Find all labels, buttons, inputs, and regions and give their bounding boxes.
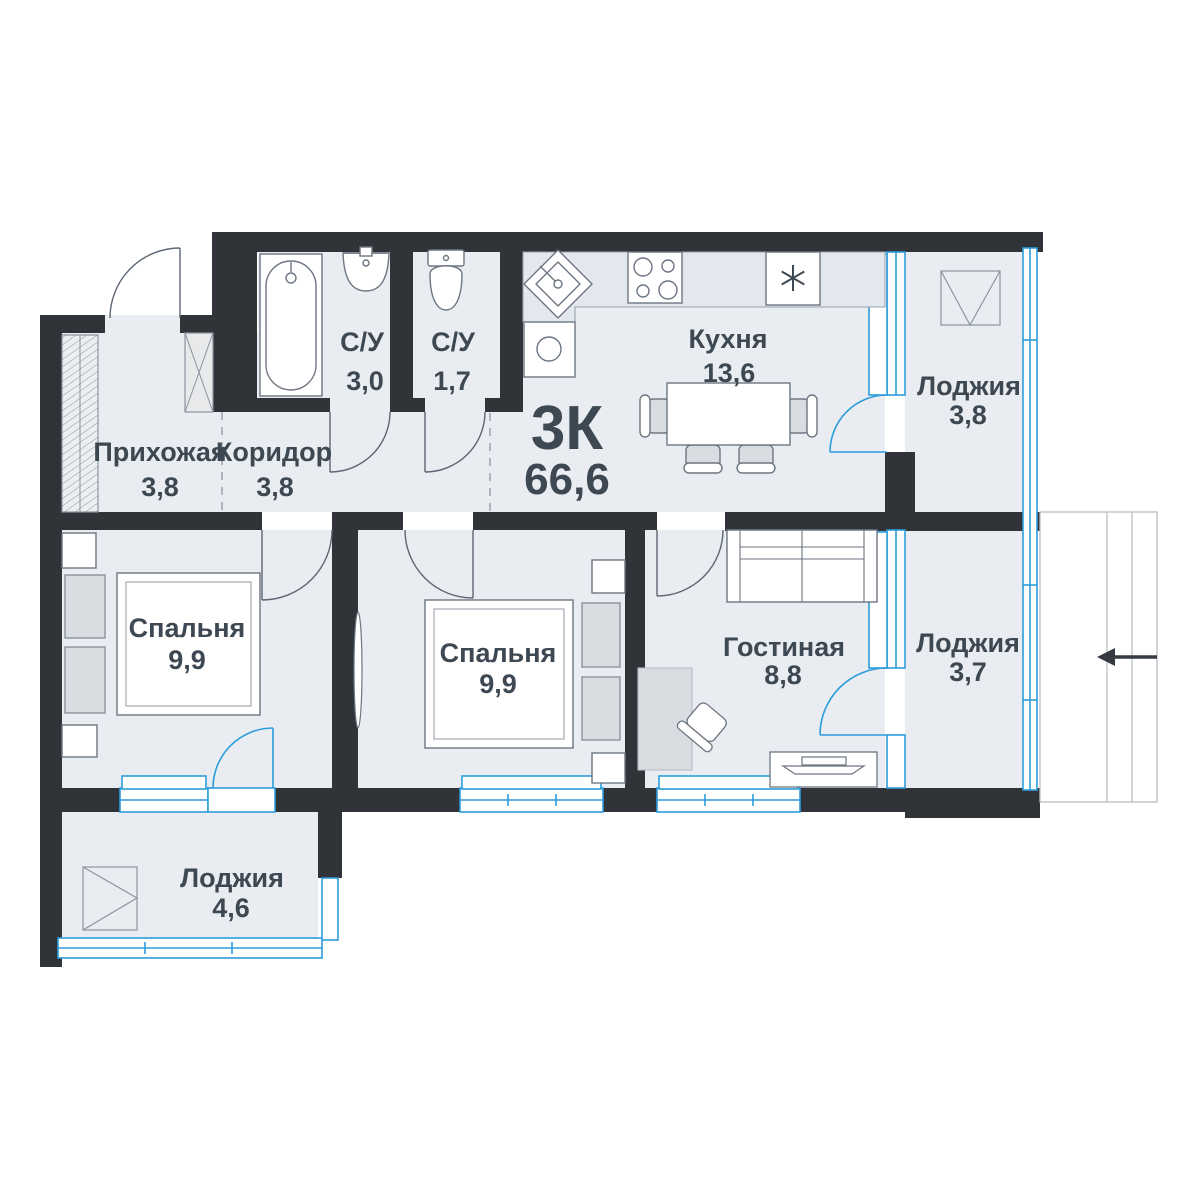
dining-chair-back	[807, 395, 817, 437]
room-label-bedroom1: Спальня	[129, 613, 246, 643]
room-label-wc: С/У	[431, 327, 476, 357]
washbasin-drain	[363, 260, 369, 266]
entrance-door-arc	[110, 248, 180, 318]
room-area-corridor: 3,8	[256, 472, 294, 502]
nightstand	[65, 647, 105, 713]
wall	[257, 398, 330, 412]
kitchen-sink-drain	[554, 280, 562, 288]
floor-plan: 3К 66,6 Прихожая 3,8 Коридор 3,8 С/У 3,0…	[0, 0, 1200, 1200]
tv-base	[802, 757, 846, 765]
bedroom2-window-sill	[462, 776, 601, 789]
bathtub-drain	[286, 273, 296, 283]
wall	[40, 315, 62, 967]
tv-icon	[783, 766, 864, 774]
room-area-loggia-bottom: 4,6	[212, 893, 250, 923]
bed-blanket	[126, 582, 251, 706]
washbasin-tap	[360, 247, 372, 256]
room-area-wc: 1,7	[433, 366, 471, 396]
stove-burner	[634, 258, 652, 276]
wall	[62, 512, 262, 530]
bedroom1-balcony-door-frame	[208, 788, 275, 812]
room-label-corridor: Коридор	[216, 437, 332, 467]
wall	[500, 252, 523, 398]
room-area-bedroom2: 9,9	[479, 669, 517, 699]
dining-table	[667, 383, 790, 445]
wall	[212, 232, 1043, 252]
wall	[275, 788, 460, 812]
total-area-label: 66,6	[524, 455, 610, 504]
loggia-bottom-glazing-right	[322, 878, 338, 940]
pouf	[62, 725, 97, 757]
apartment-type-label: 3К	[531, 394, 603, 463]
room-area-bathroom: 3,0	[346, 366, 384, 396]
mirror-icon	[354, 612, 362, 728]
nightstand	[65, 575, 105, 638]
entry-arrow-icon	[1097, 648, 1115, 666]
wall	[390, 398, 425, 412]
floor-plan-page: 3К 66,6 Прихожая 3,8 Коридор 3,8 С/У 3,0…	[0, 0, 1200, 1200]
dining-chair-back	[737, 463, 775, 473]
stair-block	[1040, 512, 1157, 802]
bedroom1-window-sill	[122, 776, 206, 789]
stove-burner	[662, 260, 674, 272]
room-label-bedroom2: Спальня	[440, 638, 557, 668]
pouf	[62, 533, 96, 568]
room-label-loggia-top: Лоджия	[917, 371, 1021, 401]
wall	[390, 252, 413, 398]
room-label-bathroom: С/У	[340, 327, 385, 357]
wall	[905, 788, 1040, 818]
entrance-threshold	[105, 315, 180, 333]
room-area-kitchen: 13,6	[703, 358, 756, 388]
living-loggia-panel	[887, 735, 905, 788]
room-area-bedroom1: 9,9	[168, 645, 206, 675]
toilet-button	[444, 256, 449, 261]
wall	[180, 315, 212, 333]
wall	[318, 812, 342, 878]
wall	[800, 788, 915, 812]
room-label-loggia-bottom: Лоджия	[180, 863, 284, 893]
wall	[40, 788, 120, 812]
room-label-hallway: Прихожая	[93, 437, 226, 467]
dining-chair-back	[640, 395, 650, 437]
room-area-loggia-top: 3,8	[949, 400, 987, 430]
desk	[638, 668, 692, 770]
wall	[212, 232, 257, 412]
wall	[885, 452, 915, 512]
dining-chair-back	[684, 463, 722, 473]
pouf	[592, 753, 625, 783]
wall	[485, 398, 523, 412]
stove-burner	[637, 285, 649, 297]
room-label-living: Гостиная	[723, 632, 845, 662]
wall	[603, 788, 657, 812]
nightstand	[582, 677, 620, 740]
washing-machine-door	[537, 337, 561, 361]
nightstand	[582, 603, 620, 667]
wall	[725, 512, 1040, 531]
room-area-living: 8,8	[764, 660, 802, 690]
room-area-loggia-right: 3,7	[949, 657, 987, 687]
room-area-hallway: 3,8	[141, 472, 179, 502]
room-label-loggia-right: Лоджия	[916, 628, 1020, 658]
room-label-kitchen: Кухня	[689, 324, 768, 354]
stove-burner	[659, 281, 677, 299]
pouf	[592, 560, 625, 593]
